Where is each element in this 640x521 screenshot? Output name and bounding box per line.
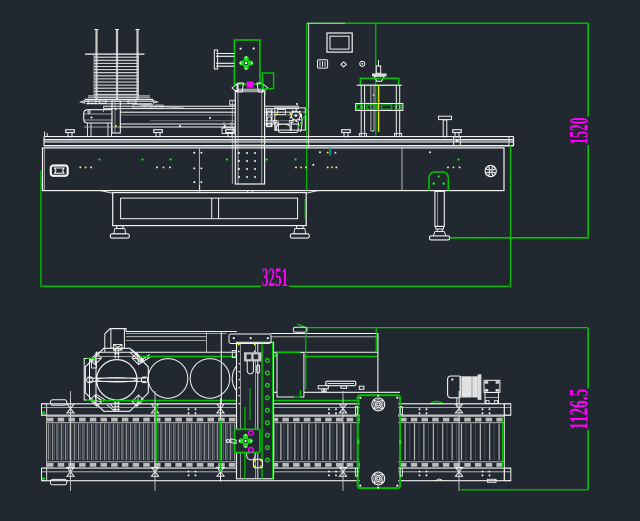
- svg-text:1126.5: 1126.5: [564, 389, 593, 430]
- svg-text:3251: 3251: [262, 263, 288, 292]
- svg-text:1520: 1520: [564, 118, 593, 145]
